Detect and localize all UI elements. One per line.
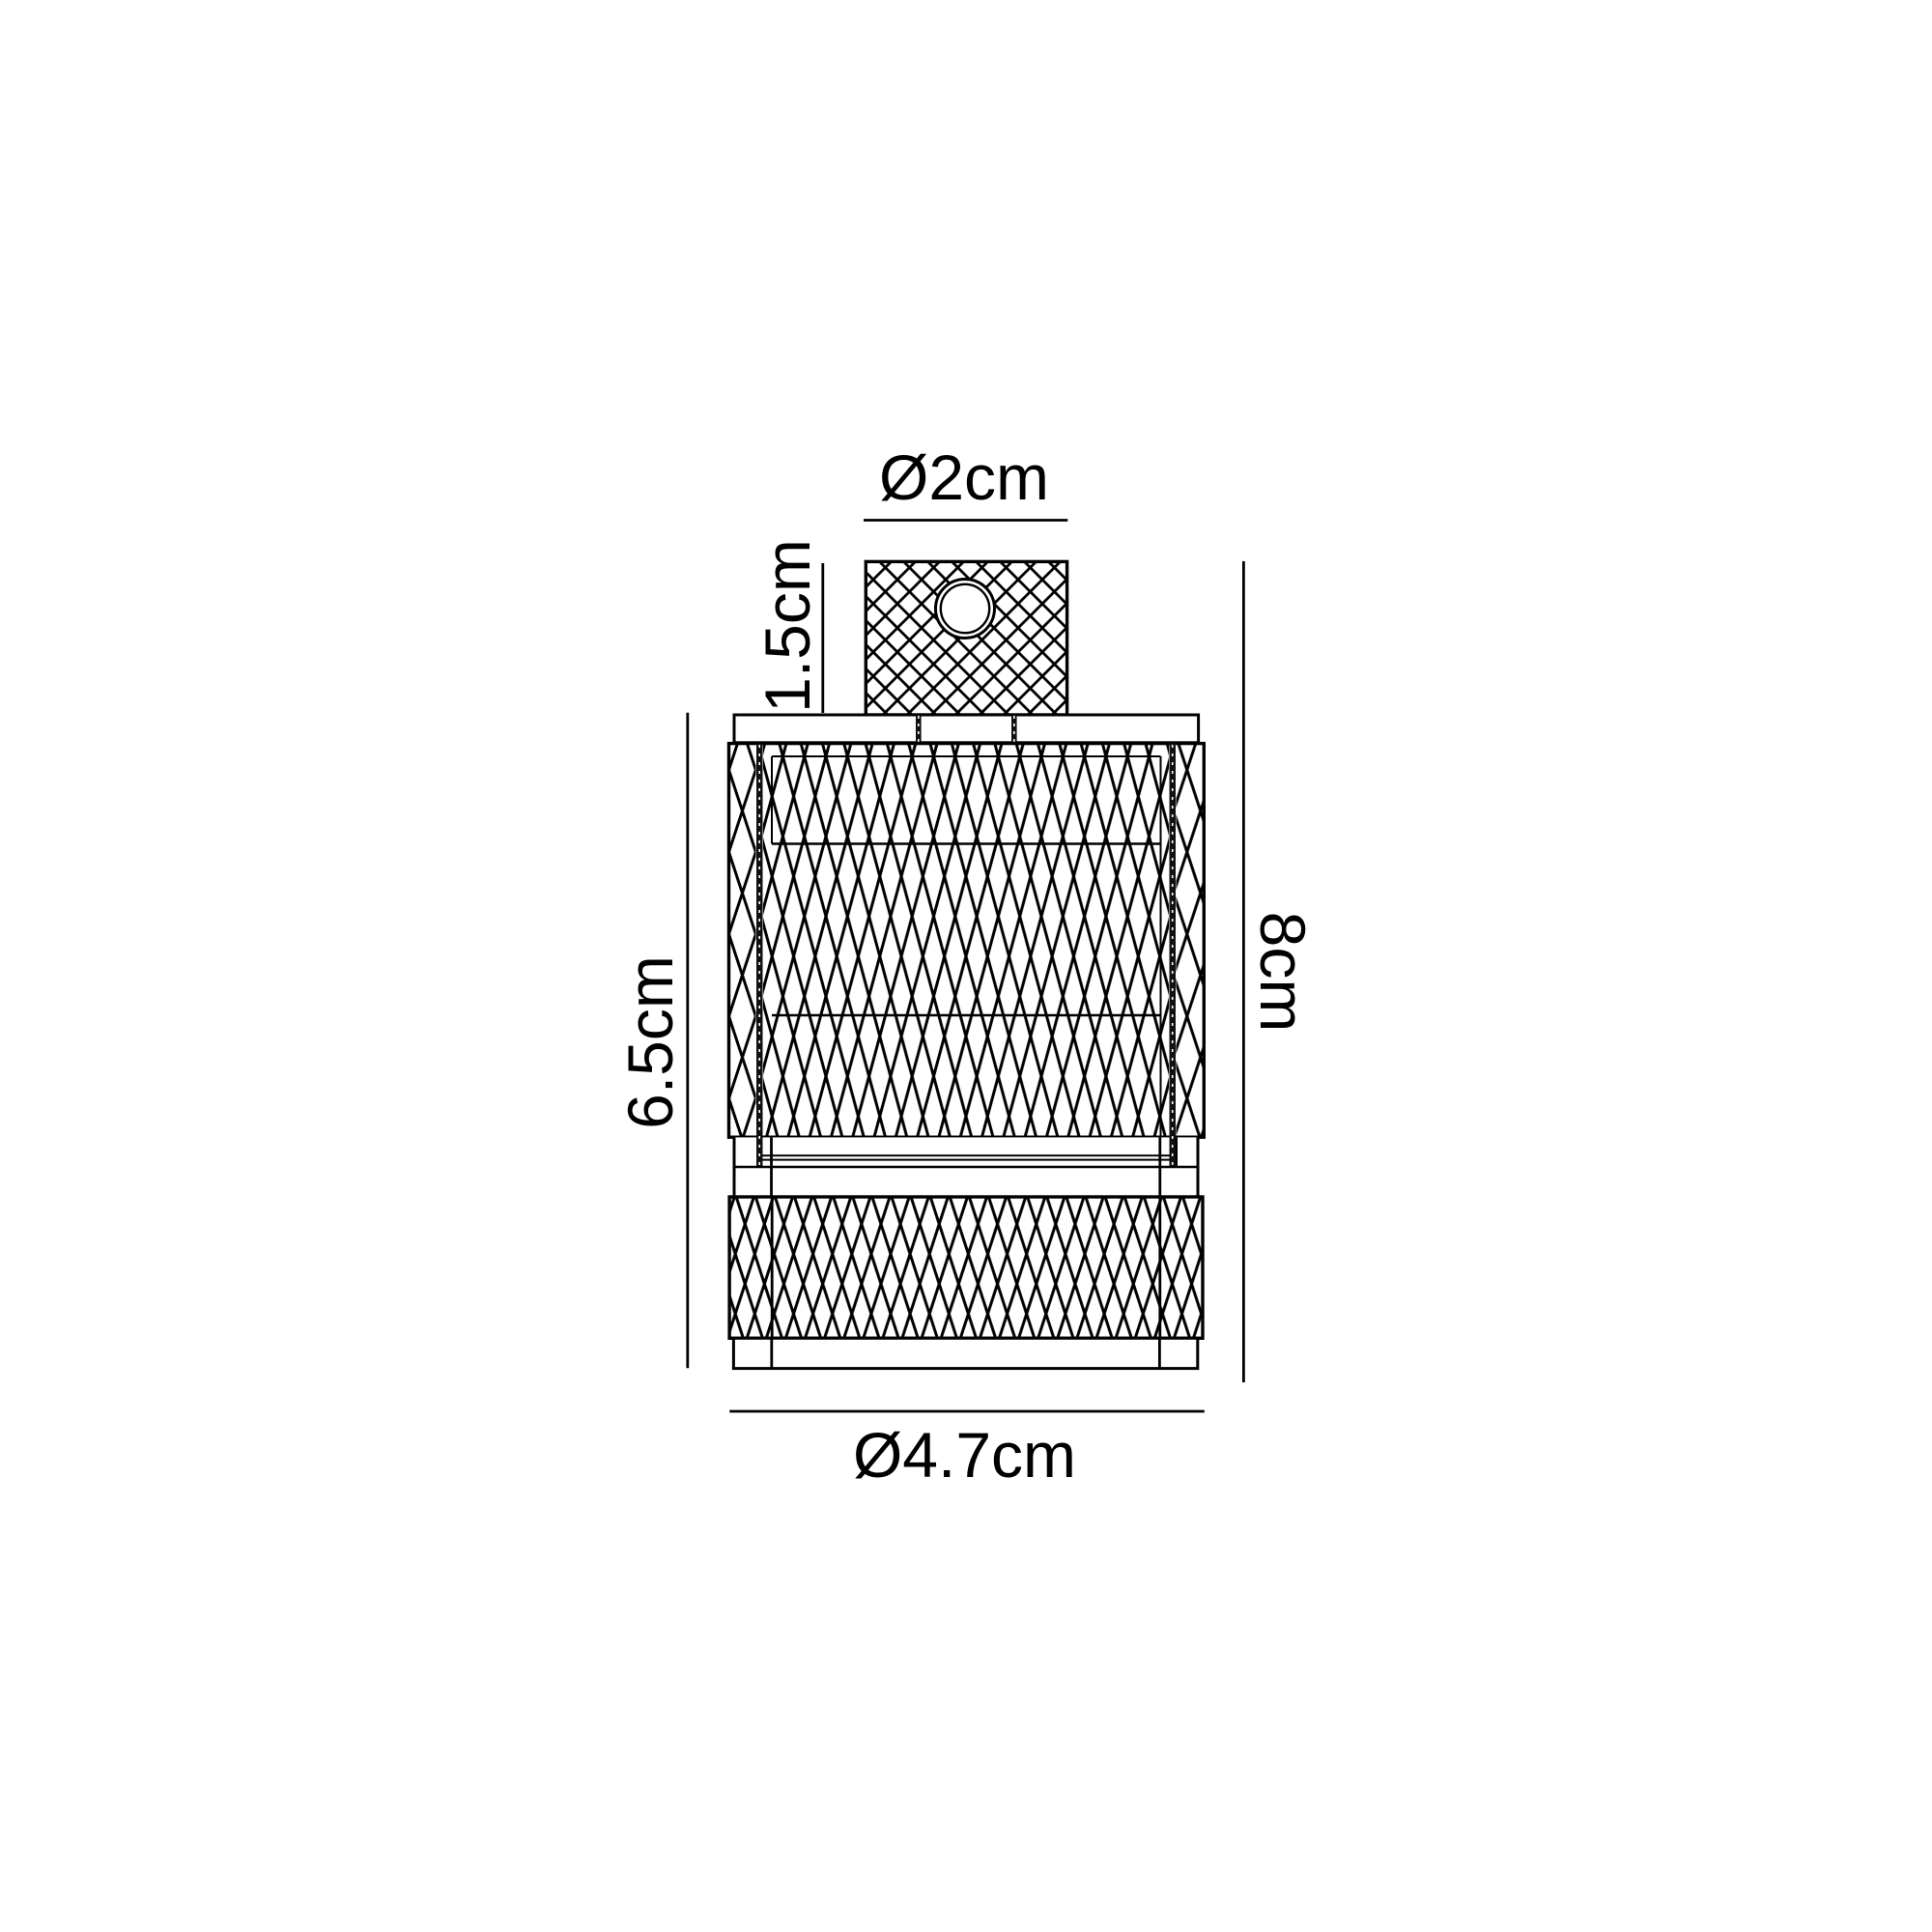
svg-text:8cm: 8cm: [1247, 912, 1319, 1033]
svg-text:Ø4.7cm: Ø4.7cm: [853, 1419, 1076, 1491]
svg-text:Ø2cm: Ø2cm: [879, 441, 1049, 513]
svg-text:6.5cm: 6.5cm: [614, 955, 686, 1129]
svg-text:1.5cm: 1.5cm: [752, 539, 823, 713]
